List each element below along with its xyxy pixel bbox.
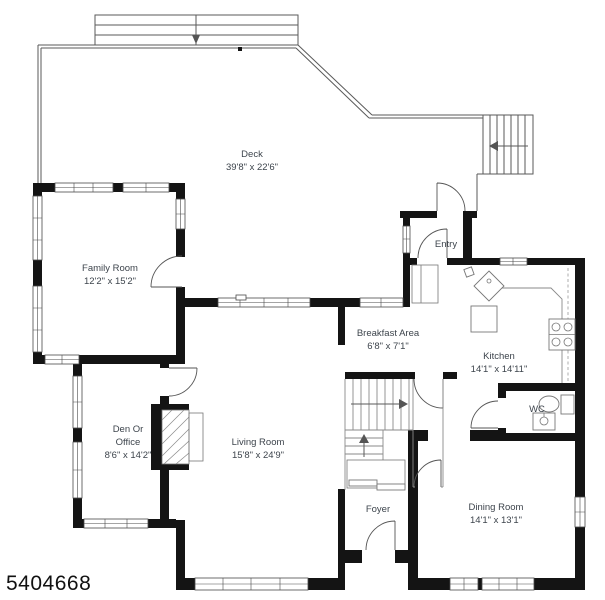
- mls-number: 5404668: [6, 572, 91, 595]
- room-label-breakfast-area: Breakfast Area: [357, 328, 420, 339]
- wc-sink-icon: [533, 413, 555, 430]
- room-dims-den: 8'6" x 14'2": [105, 450, 152, 461]
- room-label-foyer: Foyer: [366, 504, 390, 515]
- room-dims-breakfast-area: 6'8" x 7'1": [367, 341, 409, 352]
- room-label-wc: WC: [529, 404, 545, 415]
- fireplace: [151, 404, 203, 470]
- window: [482, 578, 534, 590]
- window: [450, 578, 478, 590]
- window: [176, 199, 185, 229]
- stove-icon: [549, 319, 575, 350]
- room-label-deck: Deck: [241, 149, 263, 160]
- walls-layer: [33, 183, 585, 590]
- room-dims-deck: 39'8" x 22'6": [226, 162, 278, 173]
- window: [33, 196, 42, 260]
- window: [73, 442, 82, 498]
- deck-side-stairs: [483, 115, 533, 174]
- window: [45, 355, 79, 364]
- window: [500, 258, 527, 265]
- kitchen-sink-icon: [464, 267, 504, 301]
- door-family-room: [151, 256, 182, 287]
- door-entry-exterior: [437, 183, 465, 211]
- door-wc: [471, 401, 498, 428]
- kitchen-island: [471, 306, 497, 332]
- room-label-family-room: Family Room: [82, 263, 138, 274]
- floorplan-image: Deck 39'8" x 22'6" Family Room 12'2" x 1…: [0, 0, 605, 600]
- window: [195, 578, 308, 590]
- room-label-den-line2: Office: [116, 437, 141, 448]
- room-label-living-room: Living Room: [232, 437, 285, 448]
- window: [403, 226, 410, 253]
- window: [360, 298, 403, 307]
- door-den: [169, 368, 197, 396]
- room-label-dining-room: Dining Room: [469, 502, 524, 513]
- room-label-entry: Entry: [435, 239, 457, 250]
- window: [84, 519, 148, 528]
- room-dims-dining-room: 14'1" x 13'1": [470, 515, 522, 526]
- interior-stairs: [345, 379, 413, 490]
- room-label-kitchen: Kitchen: [483, 351, 515, 362]
- floorplan-svg: Deck 39'8" x 22'6" Family Room 12'2" x 1…: [0, 0, 605, 600]
- room-dims-living-room: 15'8" x 24'9": [232, 450, 284, 461]
- door-hall-closet: [414, 460, 441, 487]
- room-label-den-line1: Den Or: [113, 424, 144, 435]
- pantry-counter: [412, 265, 438, 303]
- window: [73, 376, 82, 428]
- window: [33, 286, 42, 352]
- window: [123, 183, 169, 192]
- sliding-door-window: [218, 295, 310, 307]
- window: [575, 497, 585, 527]
- door-basement-stairs: [414, 379, 443, 408]
- window: [55, 183, 113, 192]
- door-front-entry: [366, 521, 395, 550]
- room-dims-family-room: 12'2" x 15'2": [84, 276, 136, 287]
- room-dims-kitchen: 14'1" x 14'11": [471, 364, 528, 375]
- deck-top-stairs: [95, 15, 298, 45]
- foyer-closet: [347, 460, 405, 490]
